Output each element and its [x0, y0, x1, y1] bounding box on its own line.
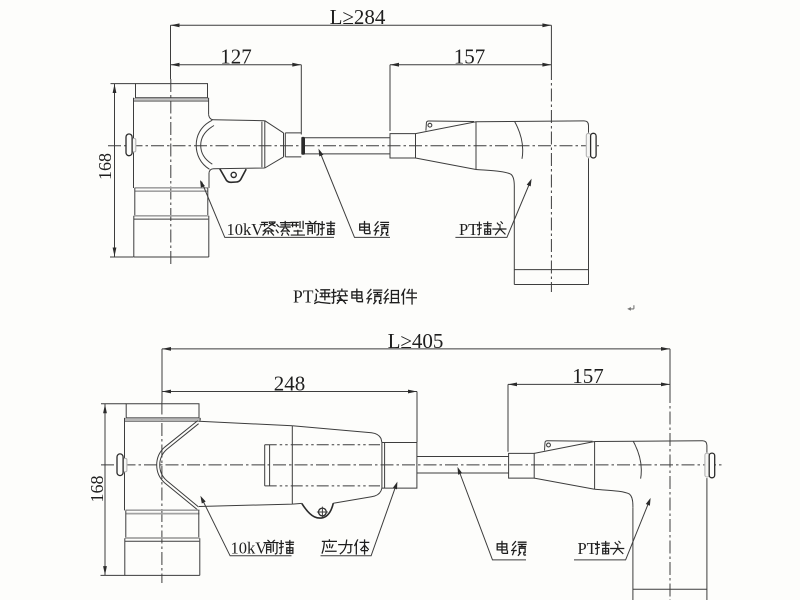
svg-text:PT: PT: [293, 287, 314, 307]
svg-text:PT: PT: [459, 220, 478, 239]
svg-text:10kV: 10kV: [231, 539, 268, 558]
svg-text:PT: PT: [578, 539, 597, 558]
svg-text:168: 168: [95, 153, 115, 180]
svg-text:10kV: 10kV: [227, 220, 264, 239]
svg-text:168: 168: [87, 476, 107, 503]
